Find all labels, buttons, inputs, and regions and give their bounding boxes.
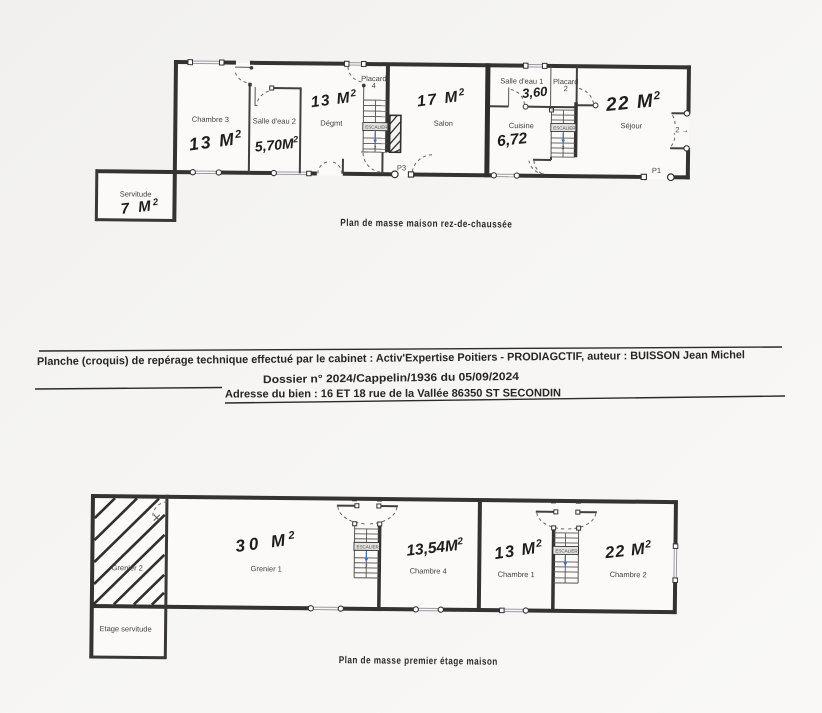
svg-text:ESCALIER: ESCALIER: [365, 125, 388, 130]
svg-text:Chambre 3: Chambre 3: [192, 115, 229, 124]
svg-text:2: 2: [374, 145, 377, 151]
svg-text:Adresse du bien : 16 ET 18 rue: Adresse du bien : 16 ET 18 rue de la Val…: [225, 387, 561, 400]
svg-text:Plan de masse premier étage ma: Plan de masse premier étage maison: [339, 655, 498, 668]
svg-text:Cuisine: Cuisine: [509, 121, 534, 130]
svg-text:Plan de masse maison rez-de-ch: Plan de masse maison rez-de-chaussée: [340, 218, 512, 231]
svg-text:Salon: Salon: [434, 119, 453, 128]
svg-text:4: 4: [372, 81, 376, 90]
svg-text:3,60: 3,60: [521, 84, 548, 101]
svg-text:ESCALIER: ESCALIER: [356, 544, 379, 549]
svg-text:P1: P1: [652, 166, 661, 175]
svg-text:Salle d'eau 2: Salle d'eau 2: [253, 116, 296, 125]
svg-text:Chambre 1: Chambre 1: [498, 570, 535, 579]
svg-text:ESCALIER: ESCALIER: [553, 125, 576, 130]
svg-text:6,72: 6,72: [496, 130, 528, 150]
svg-text:Dégmt: Dégmt: [320, 119, 343, 128]
svg-text:Séjour: Séjour: [620, 121, 642, 130]
svg-text:ESCALIER: ESCALIER: [555, 548, 578, 553]
svg-text:Chambre 4: Chambre 4: [410, 566, 447, 575]
svg-text:Etage servitude: Etage servitude: [99, 624, 151, 634]
svg-text:3: 3: [562, 145, 565, 151]
svg-text:Grenier 2: Grenier 2: [112, 563, 143, 572]
svg-text:Chambre 2: Chambre 2: [610, 570, 647, 579]
svg-text:P3: P3: [397, 163, 406, 172]
svg-text:2: 2: [564, 84, 568, 93]
svg-text:2 →: 2 →: [675, 125, 689, 134]
svg-text:Grenier 1: Grenier 1: [251, 564, 282, 573]
svg-text:2: 2: [365, 564, 368, 570]
